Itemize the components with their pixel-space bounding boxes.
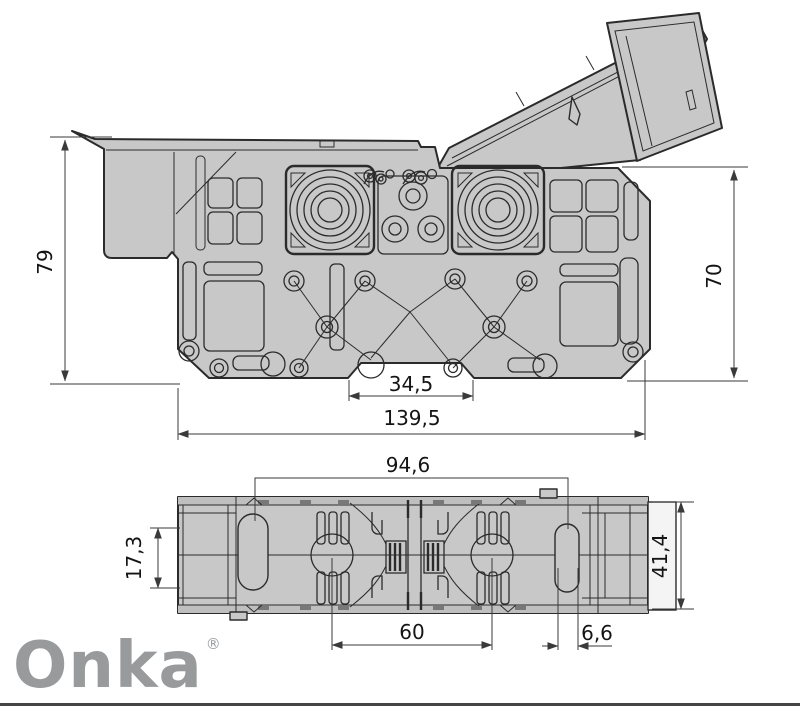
slot-left bbox=[238, 514, 268, 590]
brand-name: Onka bbox=[13, 629, 203, 703]
page-bottom-rule bbox=[0, 703, 800, 706]
side-view bbox=[72, 13, 722, 378]
dim-label-94-6: 94,6 bbox=[386, 453, 431, 477]
dim-left-slot: 17,3 bbox=[122, 528, 180, 588]
tab-top bbox=[540, 489, 557, 498]
dim-label-41-4: 41,4 bbox=[648, 534, 672, 579]
dim-label-17-3: 17,3 bbox=[122, 536, 146, 581]
drawing-page: 79 70 34,5 139,5 94,6 17,3 bbox=[0, 0, 800, 709]
dim-label-70: 70 bbox=[702, 263, 726, 288]
technical-drawing: 79 70 34,5 139,5 94,6 17,3 bbox=[0, 0, 800, 709]
cover-open bbox=[437, 13, 722, 179]
top-view bbox=[178, 489, 676, 620]
dim-label-139-5: 139,5 bbox=[383, 406, 440, 430]
brand-logo: Onka® bbox=[13, 634, 222, 698]
registered-trademark-icon: ® bbox=[206, 635, 222, 653]
dim-label-60: 60 bbox=[399, 620, 424, 644]
tab-bottom bbox=[230, 612, 247, 620]
dim-label-34-5: 34,5 bbox=[389, 372, 434, 396]
dim-label-79: 79 bbox=[33, 249, 57, 274]
dim-label-6-6: 6,6 bbox=[581, 621, 613, 645]
slot-right bbox=[555, 524, 579, 592]
